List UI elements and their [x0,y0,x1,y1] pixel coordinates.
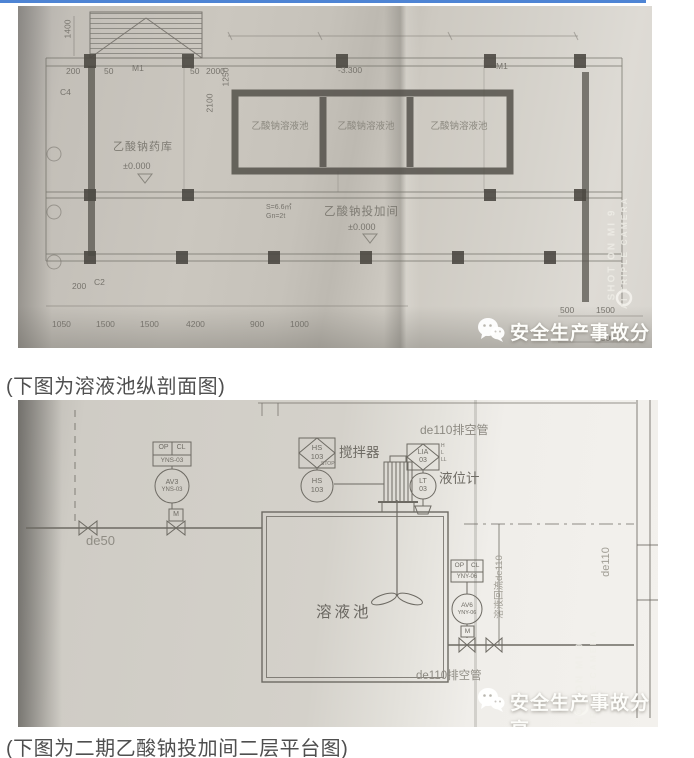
dim-bottom-5: 900 [250,320,264,329]
share-watermark-text-2: 安全生产事故分享 [510,688,658,727]
alarm-mark-l: L [441,451,444,457]
av3-circle-tag: AV3 YNS-03 [155,472,189,500]
dim-1250: 1250 [220,68,230,87]
storage-elevation: ±0.000 [123,162,150,172]
alarm-mark-h: H [441,444,445,450]
av6-box-yny: YNY-06 [457,574,477,581]
av6-motor-box: M [461,626,474,637]
dim-500: 500 [560,306,574,315]
vent-pipe-label-bottom: de110排空管 [416,670,482,683]
floor-plan-linework [18,6,652,348]
av3-cl: CL [177,444,186,452]
dosing-room-label: 乙酸钠投加间 [324,206,399,219]
camera-watermark-line2: AI TRIPLE CAMERA [619,199,629,309]
lt-line1: LT [419,478,427,486]
pit-elevation: -3.300 [338,66,362,75]
lia-square-tag: LIA 03 [407,446,439,468]
av6-name: AV6 [461,602,473,609]
av6-op: OP [455,562,464,569]
pid-linework [18,400,658,727]
tank-label-2: 乙酸钠溶液池 [330,122,402,132]
av3-box-yns: YNS-03 [161,457,184,464]
door-label-m1b: M1 [496,62,508,71]
dim-50b: 50 [190,67,199,76]
alarm-mark-ll: LL [441,458,447,464]
stop-note: STOP [321,462,335,468]
photo-floor-plan[interactable]: 乙酸钠溶液池 乙酸钠溶液池 乙酸钠溶液池 乙酸钠药库 ±0.000 乙酸钠投加间… [18,6,652,348]
vent-pipe-label-top: de110排空管 [420,424,488,437]
tank-label-1: 乙酸钠溶液池 [244,122,316,132]
dim-2100: 2100 [204,94,214,113]
level-gauge-label: 液位计 [439,472,480,487]
dim-200b: 200 [72,282,86,291]
wechat-icon [476,316,506,344]
av6-op-cl-box: OP CL [451,560,483,572]
return-line-label: 溶液回流de110 [491,527,505,647]
area-note: S=6.6㎡ [266,204,292,212]
av3-yns: YNS-03 [161,487,182,494]
feed-pipe-label: de50 [86,534,115,548]
de110-line-label: de110 [600,532,612,592]
window-label-c2: C2 [94,278,105,287]
share-watermark-text: 安全生产事故分享 [510,318,652,348]
load-note: Gn=2t [266,213,285,221]
article-page: 乙酸钠溶液池 乙酸钠溶液池 乙酸钠溶液池 乙酸钠药库 ±0.000 乙酸钠投加间… [0,0,694,758]
door-label-m1: M1 [132,64,144,73]
photo-pid-diagram[interactable]: de110排空管 HS 103 STOP HS 103 搅拌器 LIA 03 H… [18,400,658,727]
dim-bottom-4: 4200 [186,320,205,329]
caption-platform-view: (下图为二期乙酸钠投加间二层平台图) [6,732,348,758]
av3-op: OP [158,444,168,452]
top-blue-rule [0,0,646,3]
lt-line2: 03 [419,486,427,494]
hs-circle-tag: HS 103 [301,474,333,498]
hs-circle-line2: 103 [311,486,324,495]
lia-line2: 03 [419,457,427,465]
dim-1400: 1400 [62,20,72,39]
av6-box-tagno: YNY-06 [451,572,483,582]
lt-circle-tag: LT 03 [410,476,436,496]
av3-name: AV3 [166,479,179,487]
dosing-elevation: ±0.000 [348,223,375,233]
av3-box-tagno: YNS-03 [153,455,191,466]
agitator-label: 搅拌器 [339,446,380,461]
dim-bottom-1: 1050 [52,320,71,329]
dim-bottom-2: 1500 [96,320,115,329]
av3-m: M [173,511,179,519]
dim-bottom-6: 1000 [290,320,309,329]
av6-yny: YNY-06 [458,610,477,616]
tank-label: 溶液池 [316,604,372,621]
av3-motor-box: M [169,509,183,521]
caption-section-view: (下图为溶液池纵剖面图) [6,370,225,399]
dim-bottom-3: 1500 [140,320,159,329]
av6-circle-tag: AV6 YNY-06 [452,597,482,621]
lia-line1: LIA [418,449,429,457]
camera-watermark-line1: SHOT ON MI 9 [607,200,618,310]
av3-op-cl-box: OP CL [153,442,191,455]
av6-cl: CL [471,562,479,569]
av6-m: M [465,628,470,635]
window-label-c4: C4 [60,88,71,97]
storage-room-label: 乙酸钠药库 [113,141,173,153]
wechat-icon [476,686,506,714]
dim-200: 200 [66,67,80,76]
dim-50a: 50 [104,67,113,76]
tank-label-3: 乙酸钠溶液池 [423,122,495,132]
